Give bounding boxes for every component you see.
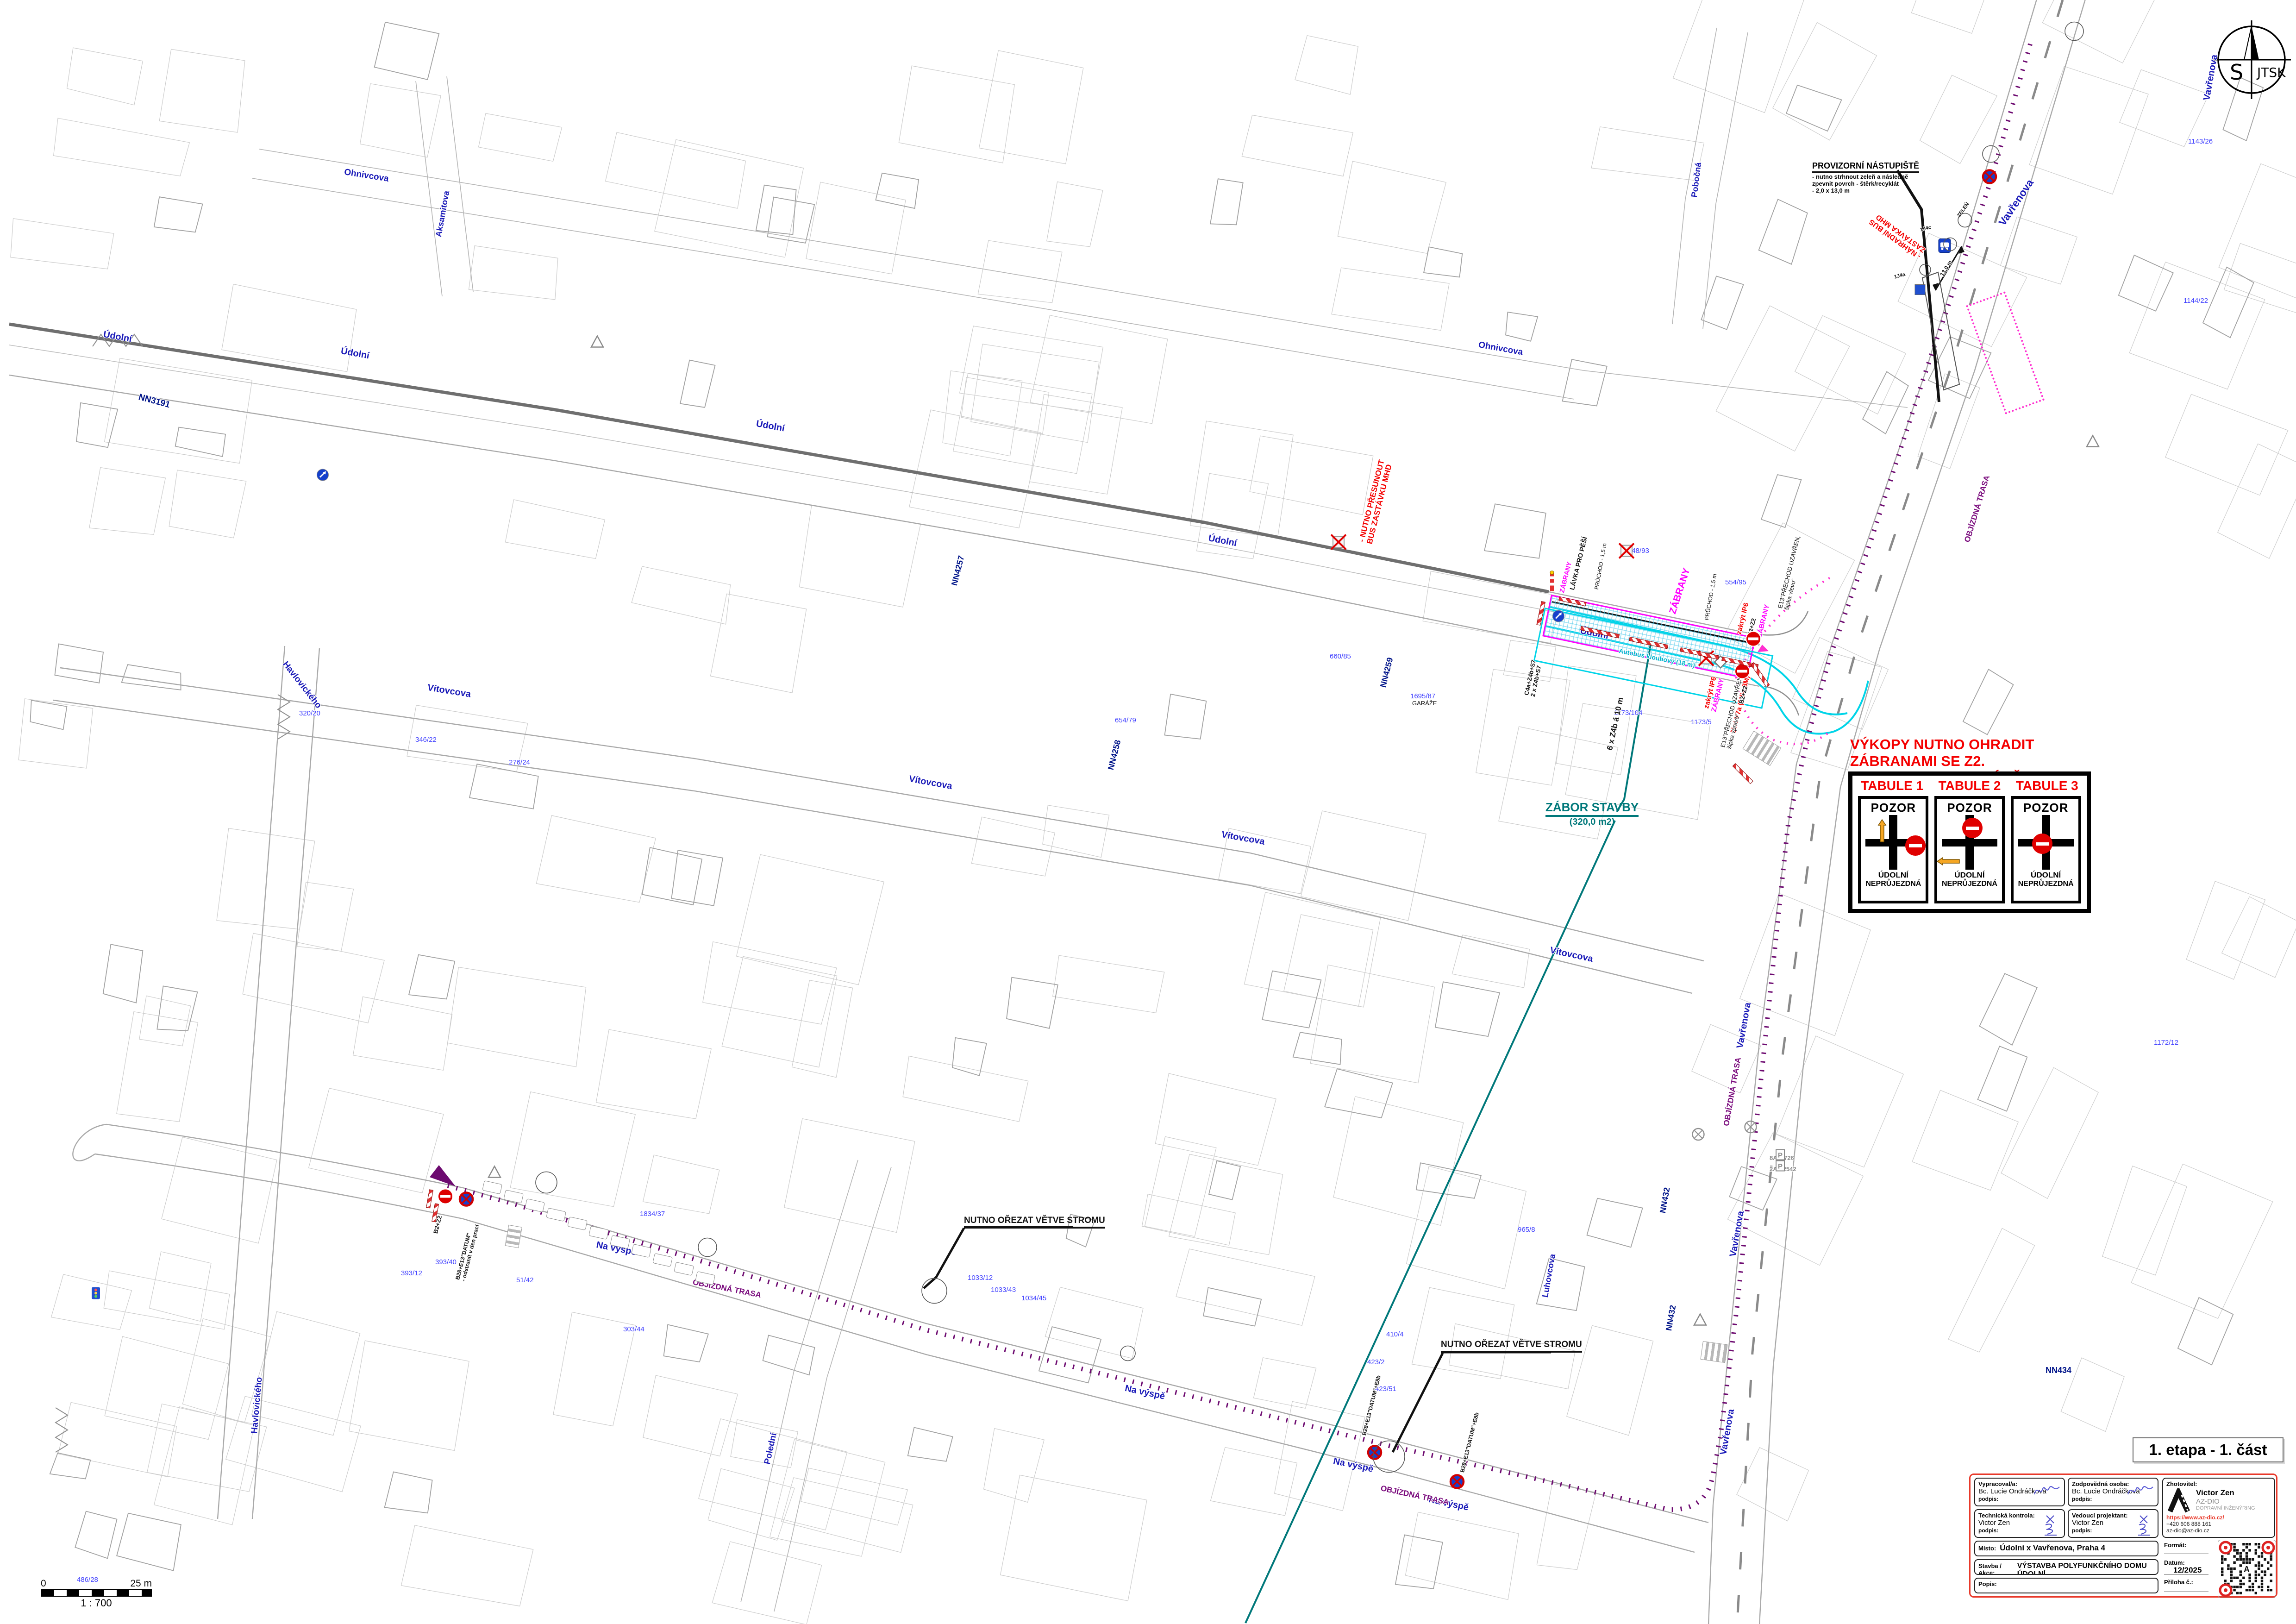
project-box: Stavba / Akce: VÝSTAVBA POLYFUNKČNÍHO DO… [1974, 1559, 2158, 1575]
svg-text:A: A [2244, 1565, 2250, 1574]
parcel-number: 554/95 [1725, 579, 1746, 586]
tabule-panel-2: POZOR ÚDOLNÍ NEPRŮJEZDNÁ [1934, 796, 2005, 903]
closed-street-status: NEPRŮJEZDNÁ [1937, 880, 2002, 888]
gray-no-stop-icon [1744, 1120, 1758, 1136]
temporary-platform-note-line: - nutno strhnout zeleň a následně [1812, 173, 1937, 180]
contractor-label: Zhotovitel: [2166, 1480, 2197, 1487]
description-label: Popis: [1978, 1580, 1997, 1587]
parcel-number: 51/42 [516, 1277, 534, 1284]
no-stop-icon [1449, 1474, 1465, 1492]
parcel-number: 1173/5 [1691, 719, 1712, 726]
gray-no-stop-icon [1691, 1128, 1705, 1144]
temporary-platform-title: PROVIZORNÍ NÁSTUPIŠTĚ [1812, 161, 1919, 173]
signature-label: podpis: [1978, 1527, 1998, 1534]
parcel-number: 276/24 [509, 759, 530, 766]
closed-street-status: NEPRŮJEZDNÁ [1861, 880, 1926, 888]
format-line [2164, 1554, 2208, 1554]
tabule-legend: TABULE 1 TABULE 2 TABULE 3 POZOR ÚDOLNÍ … [1848, 771, 2091, 913]
warn-tri-icon [2086, 435, 2100, 450]
parcel-number: 1695/87 [1410, 693, 1435, 700]
tabule-2-title: TABULE 2 [1939, 778, 2001, 793]
pozor-label: POZOR [1937, 801, 2002, 815]
temporary-platform-note: PROVIZORNÍ NÁSTUPIŠTĚ - nutno strhnout z… [1812, 161, 1937, 194]
lead-designer-box: Vedoucí projektant: Victor Zen podpis: [2068, 1509, 2158, 1538]
lead-designer-label: Vedoucí projektant: [2072, 1512, 2128, 1519]
responsible-box: Zodpovědná osoba: Bc. Lucie Ondráčková p… [2068, 1478, 2158, 1506]
tree-icon [2064, 21, 2084, 44]
tree-icon [1919, 263, 1932, 279]
site-plan-sheet: S JTSK VÝKOPY NUTNO OHRADIT ZÁBRANAMI SE… [0, 0, 2296, 1624]
closed-street-name: ÚDOLNÍ [1937, 871, 2002, 880]
parcel-number: 1144/22 [2183, 297, 2208, 305]
parcel-number: 423/2 [1367, 1359, 1385, 1366]
technical-check-label: Technická kontrola: [1978, 1512, 2035, 1519]
roads [9, 0, 2086, 1624]
parcel-number: 1034/45 [1021, 1295, 1046, 1302]
parcel-number: 1143/26 [2188, 138, 2213, 145]
technical-check-box: Technická kontrola: Victor Zen podpis: [1974, 1509, 2065, 1538]
project-label: Stavba / Akce: [1978, 1562, 2014, 1575]
north-s-label: S [2230, 60, 2243, 85]
format-label: Formát: [2164, 1542, 2186, 1549]
warn-tri-icon [488, 1166, 501, 1181]
date-value: 12/2025 [2173, 1566, 2202, 1575]
tree-icon [535, 1171, 558, 1197]
blue-square-icon [1914, 284, 1926, 298]
intersection-closed-icon [1937, 815, 2002, 870]
signature-label: podpis: [1978, 1496, 1998, 1502]
intersection-closed-icon [2014, 815, 2078, 870]
tabule-panel-1: POZOR ÚDOLNÍ NEPRŮJEZDNÁ [1858, 796, 1928, 903]
p-sign-icon: P [1776, 1160, 1785, 1174]
svg-text:P: P [1778, 1152, 1783, 1160]
no-stop-icon [1982, 169, 1997, 187]
c4a-icon [1552, 610, 1565, 625]
location-box: Místo: Údolní x Vavřenova, Praha 4 [1974, 1541, 2158, 1556]
closed-street-name: ÚDOLNÍ [1861, 871, 1926, 880]
construction-site-takeover-label: ZÁBOR STAVBY (320,0 m2) [1545, 800, 1639, 828]
contractor-company: AZ-DIO [2196, 1498, 2255, 1505]
tree-icon [1120, 1345, 1136, 1364]
attachment-line [2164, 1592, 2208, 1592]
red-x-icon [1331, 534, 1346, 552]
orange-arrow-icon [1877, 819, 1887, 843]
contractor-subtitle: DOPRAVNÍ INŽENÝRING [2196, 1505, 2255, 1511]
signature-scribble [2033, 1482, 2062, 1501]
tree-icon [697, 1237, 718, 1260]
title-block: Vypracoval/a: Bc. Lucie Ondráčková podpi… [1969, 1474, 2277, 1598]
date-line [2164, 1574, 2208, 1574]
zabor-area: (320,0 m2) [1545, 817, 1639, 828]
c4a-icon [316, 469, 329, 484]
beacon-icon [1549, 571, 1555, 595]
contractor-phone: +420 606 888 161 [2166, 1521, 2271, 1527]
stage-label: 1. etapa - 1. část [2133, 1437, 2283, 1462]
pozor-label: POZOR [1861, 801, 1926, 815]
parcel-number: 393/12 [401, 1270, 422, 1277]
signature-label: podpis: [2072, 1496, 2092, 1502]
project-value: VÝSTAVBA POLYFUNKČNÍHO DOMU ÚDOLNÍ [2017, 1562, 2154, 1575]
tree-icon [1957, 213, 1973, 231]
date-label: Datum: [2164, 1559, 2185, 1566]
scale-max: 25 m [130, 1578, 152, 1589]
parcel-number: 660/85 [1330, 653, 1351, 660]
description-box: Popis: [1974, 1578, 2158, 1593]
north-jtsk-label: JTSK [2256, 65, 2286, 80]
pozor-label: POZOR [2014, 801, 2078, 815]
parcel-number: 486/28 [77, 1576, 98, 1584]
map-annotation: GARÁŽE [1412, 700, 1437, 707]
warning-line1: VÝKOPY NUTNO OHRADIT ZÁBRANAMI SE Z2. [1850, 736, 2091, 770]
north-arrow: S JTSK [2212, 20, 2291, 99]
parcel-number: 1172/12 [2154, 1039, 2178, 1047]
tabule-1-title: TABULE 1 [1861, 778, 1923, 793]
zabor-title: ZÁBOR STAVBY [1545, 800, 1639, 817]
signature-label: podpis: [2072, 1527, 2092, 1534]
location-value: Údolní x Vavřenova, Praha 4 [2000, 1543, 2105, 1553]
closed-street-name: ÚDOLNÍ [2014, 871, 2078, 880]
author-box: Vypracoval/a: Bc. Lucie Ondráčková podpi… [1974, 1478, 2065, 1506]
intersection-closed-icon [1861, 815, 1926, 870]
tree-icon [1982, 145, 2000, 166]
parcel-number: 346/22 [415, 736, 437, 744]
scale-ratio: 1 : 700 [41, 1597, 152, 1609]
parcel-number: 393/40 [435, 1259, 457, 1266]
no-entry-icon [1745, 631, 1762, 650]
parcel-number: 965/8 [1518, 1226, 1535, 1234]
no-entry-icon [437, 1188, 454, 1207]
closed-street-status: NEPRŮJEZDNÁ [2014, 880, 2078, 888]
parcel-number: 320/20 [299, 710, 320, 717]
contractor-name: Victor Zen [2196, 1488, 2255, 1498]
tabule-3-title: TABULE 3 [2016, 778, 2078, 793]
contractor-website-link[interactable]: https://www.az-dio.cz/ [2166, 1514, 2271, 1521]
tree-icon [1943, 237, 1958, 254]
location-label: Místo: [1978, 1545, 1996, 1552]
parcel-number: 1033/43 [991, 1286, 1016, 1294]
red-x-icon [1619, 543, 1634, 561]
signature-scribble [2126, 1482, 2156, 1501]
parcel-number: 1033/12 [968, 1274, 993, 1282]
signature-scribble [2042, 1514, 2062, 1538]
contractor-email: az-dio@az-dio.cz [2166, 1527, 2271, 1534]
signature-scribble [2135, 1514, 2156, 1538]
az-dio-logo-icon [2166, 1488, 2192, 1514]
responsible-label: Zodpovědná osoba: [2072, 1480, 2129, 1487]
map-annotation: NUTNO OŘEZAT VĚTVE STROMU [964, 1216, 1105, 1229]
parcel-number: 1834/37 [640, 1210, 665, 1218]
signal-icon [91, 1287, 100, 1302]
warn-tri-icon [1693, 1313, 1707, 1329]
parcel-number: 654/79 [1115, 717, 1136, 724]
contractor-box: Zhotovitel: Victor Zen AZ-DIO DOPRAVNÍ I… [2162, 1478, 2275, 1538]
temporary-platform-note-line: zpevnit povrch - štěrk/recyklát [1812, 180, 1937, 187]
author-label: Vypracoval/a: [1978, 1480, 2017, 1487]
crosswalk-icon [1700, 1341, 1727, 1363]
scale-bar-graphic [41, 1589, 152, 1597]
network-label: NN434 [2046, 1366, 2071, 1375]
tree-icon [921, 1278, 948, 1307]
warn-tri-icon [590, 335, 604, 351]
parcel-number: 410/4 [1386, 1331, 1404, 1338]
scale-zero: 0 [41, 1578, 46, 1589]
svg-text:P: P [1778, 1163, 1783, 1171]
parcel-number: 303/44 [623, 1326, 644, 1333]
attachment-label: Příloha č.: [2164, 1579, 2193, 1586]
tabule-panel-3: POZOR ÚDOLNÍ NEPRŮJEZDNÁ [2011, 796, 2081, 903]
qr-code: A [2218, 1540, 2276, 1598]
map-annotation: NUTNO OŘEZAT VĚTVE STROMU [1441, 1340, 1582, 1353]
temporary-platform-note-line: - 2,0 x 13,0 m [1812, 187, 1937, 194]
tree-icon [1372, 1440, 1406, 1476]
orange-arrow-icon [1936, 857, 1960, 866]
no-stop-icon [458, 1191, 474, 1210]
